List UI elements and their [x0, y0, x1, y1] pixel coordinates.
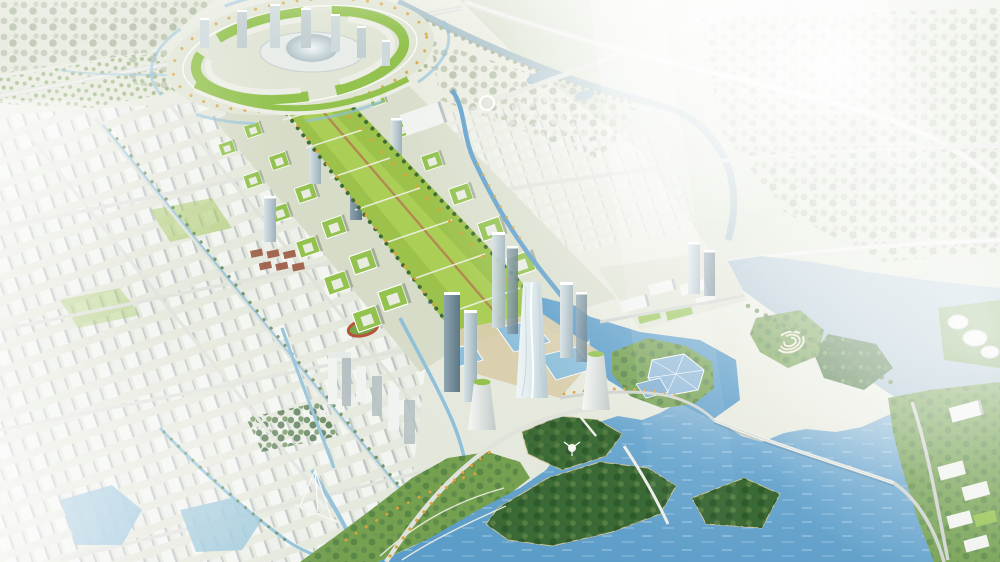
central-dome	[286, 34, 338, 62]
masterplan-rendering	[0, 0, 1000, 562]
roundabout	[480, 96, 494, 110]
